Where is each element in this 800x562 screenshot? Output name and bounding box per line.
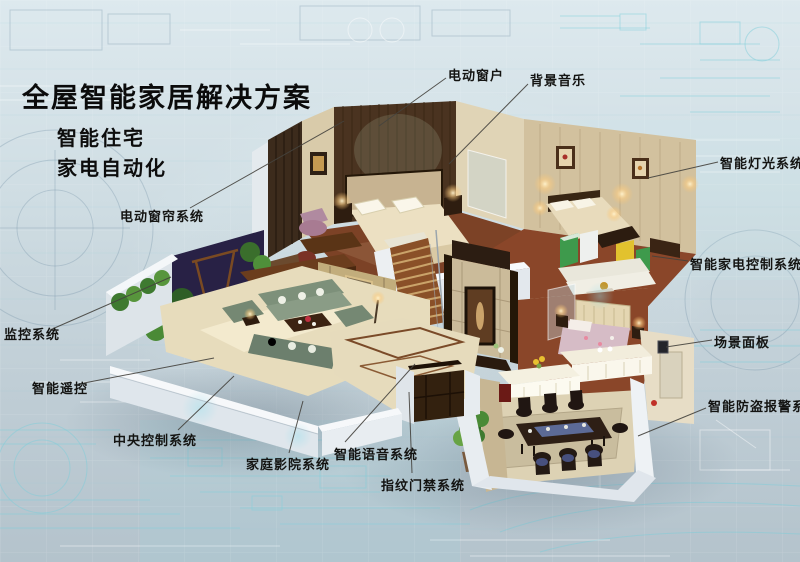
- label-home-theater-system: 家庭影院系统: [246, 454, 330, 473]
- label-electric-window: 电动窗户: [448, 65, 504, 84]
- label-smart-remote-control: 智能遥控: [32, 378, 88, 397]
- label-smart-lighting-system: 智能灯光系统: [720, 153, 800, 172]
- label-electric-curtain-system: 电动窗帘系统: [120, 206, 204, 225]
- label-scene-panel: 场景面板: [714, 332, 770, 351]
- label-smart-voice-system: 智能语音系统: [334, 444, 418, 463]
- subtitle-line-1: 智能住宅: [57, 122, 145, 151]
- page-title: 全屋智能家居解决方案: [22, 76, 312, 115]
- label-smart-appliance-control: 智能家电控制系统: [690, 254, 800, 273]
- subtitle-line-2: 家电自动化: [57, 152, 167, 181]
- label-monitoring-system: 监控系统: [4, 324, 60, 343]
- label-antitheft-alarm-system: 智能防盗报警系统: [708, 396, 800, 415]
- label-background-music: 背景音乐: [530, 70, 586, 89]
- label-fingerprint-access-system: 指纹门禁系统: [381, 475, 465, 494]
- smart-home-poster: 全屋智能家居解决方案 智能住宅 家电自动化 电动窗户 背景音乐 智能灯光系统 智…: [0, 0, 800, 562]
- label-central-control-system: 中央控制系统: [113, 430, 197, 449]
